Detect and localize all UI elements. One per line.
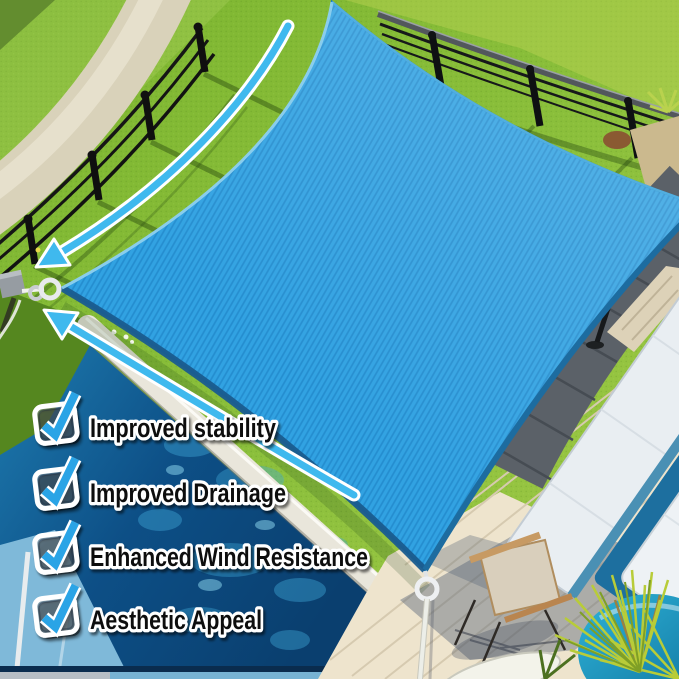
bronze-plant <box>603 131 631 149</box>
fence-post-cap <box>194 23 203 32</box>
pool-shallow-strip <box>110 672 340 679</box>
fence-post-cap <box>24 215 33 224</box>
product-image: Improved stability Improved Drainage Enh… <box>0 0 679 679</box>
post-base <box>586 341 604 349</box>
fence-post-cap <box>624 97 632 105</box>
fence-post-cap <box>141 91 150 100</box>
feature-label: Improved Drainage <box>90 478 286 508</box>
flower <box>36 248 41 253</box>
backyard-scene-svg: Improved stability Improved Drainage Enh… <box>0 0 679 679</box>
caustic-bright <box>198 579 222 591</box>
caustic <box>270 630 310 650</box>
fence-post-cap <box>88 151 97 160</box>
caustic-bright <box>166 465 184 475</box>
fence-post-cap <box>428 31 436 39</box>
feature-label: Enhanced Wind Resistance <box>90 542 368 572</box>
caustic <box>138 509 182 531</box>
pool-gutter <box>0 672 110 679</box>
caustic-bright <box>255 520 275 530</box>
fence-post-cap <box>526 65 534 73</box>
feature-label: Improved stability <box>90 413 276 443</box>
feature-label: Aesthetic Appeal <box>90 605 262 635</box>
caustic <box>274 578 326 602</box>
